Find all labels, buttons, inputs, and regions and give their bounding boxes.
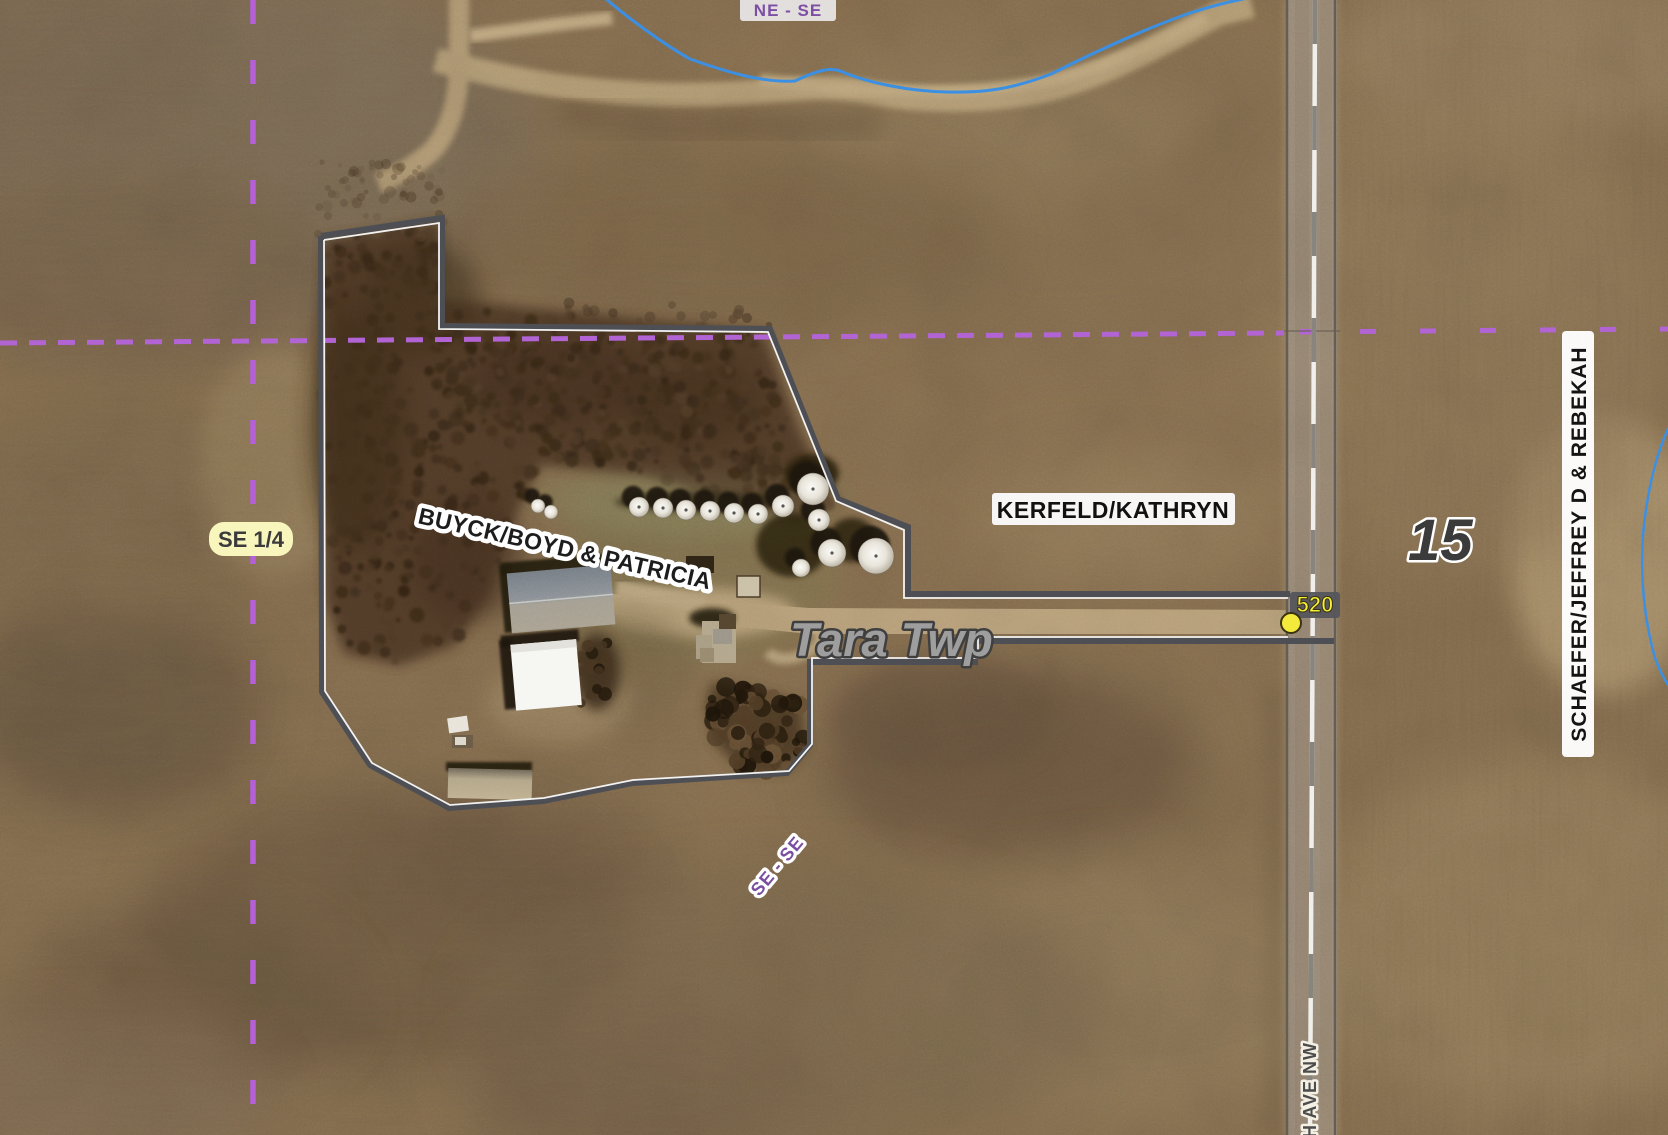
svg-text:SE 1/4: SE 1/4: [218, 527, 285, 552]
svg-text:15: 15: [1408, 508, 1473, 573]
svg-text:KERFELD/KATHRYN: KERFELD/KATHRYN: [997, 497, 1229, 523]
svg-text:NE - SE: NE - SE: [754, 1, 822, 20]
svg-text:SCHAEFER/JEFFREY D & REBEKAH: SCHAEFER/JEFFREY D & REBEKAH: [1568, 346, 1591, 741]
svg-text:Tara Twp: Tara Twp: [790, 613, 993, 666]
svg-text:520: 520: [1297, 592, 1334, 617]
svg-text:H AVE NW: H AVE NW: [1300, 1042, 1320, 1135]
